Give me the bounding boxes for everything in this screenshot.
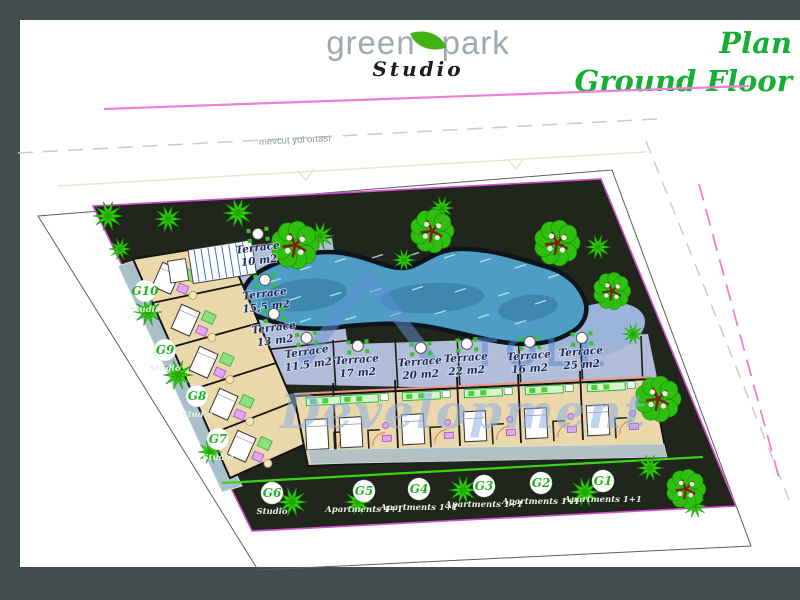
tree-icon (535, 220, 580, 266)
tree-icon (594, 272, 631, 309)
patio-chair-icon (427, 341, 431, 345)
unit-id: G9 (156, 343, 175, 357)
patio-chair-icon (570, 332, 574, 336)
patio-table-icon (352, 340, 364, 352)
patio-chair-icon (455, 338, 459, 342)
road-center-label: mevcut yol ortası (259, 133, 331, 148)
patio-chair-icon (346, 340, 350, 344)
unit-id: G4 (410, 482, 429, 496)
road-centerline (18, 119, 657, 153)
patio-chair-icon (536, 335, 540, 339)
patio-chair-icon (253, 275, 257, 279)
unit-badge: G10Studio (129, 280, 160, 315)
patio-table-icon (461, 338, 473, 350)
patio-chair-icon (313, 330, 318, 335)
unit-id: G5 (355, 484, 374, 498)
patio-chair-icon (409, 342, 413, 346)
site-plan: mevcut yol ortası (0, 0, 800, 600)
patio-table-icon (576, 332, 588, 344)
unit-type-label: Studio (181, 410, 212, 420)
unit-type-label: Apartments 1+1 (563, 495, 642, 505)
unit-id: G6 (263, 486, 282, 500)
road-edge-line-right (699, 184, 779, 478)
patio-chair-icon (588, 331, 592, 335)
unit-id: G10 (132, 284, 160, 298)
unit-id: G3 (475, 479, 494, 493)
patio-table-icon (524, 336, 536, 348)
patio-chair-icon (262, 309, 266, 313)
watermark-script-text: Development (278, 385, 647, 440)
patio-chair-icon (264, 227, 268, 231)
unit-id: G8 (188, 389, 207, 403)
patio-chair-icon (295, 333, 300, 338)
tree-icon (411, 209, 454, 253)
terrace-area: 17 m2 (339, 366, 376, 381)
unit-type-label: Studio (149, 364, 180, 374)
patio-chair-icon (518, 336, 522, 340)
patio-chair-icon (473, 337, 477, 341)
patio-chair-icon (246, 229, 250, 233)
unit-type-label: Studio (202, 453, 233, 463)
unit-type-label: Studio (129, 305, 160, 315)
unit-type-label: Studio (256, 507, 287, 517)
page: green park Studio Plan Ground Floor (0, 0, 800, 600)
patio-chair-icon (280, 307, 284, 311)
road-edge-line (104, 86, 749, 109)
patio-chair-icon (271, 273, 275, 277)
unit-id: G2 (532, 476, 551, 490)
tree-icon (667, 469, 706, 509)
patio-table-icon (415, 342, 427, 354)
unit-id: G7 (209, 432, 228, 446)
patio-chair-icon (364, 339, 368, 343)
unit-id: G1 (594, 474, 613, 488)
terrace-area: 16 m2 (511, 362, 548, 377)
